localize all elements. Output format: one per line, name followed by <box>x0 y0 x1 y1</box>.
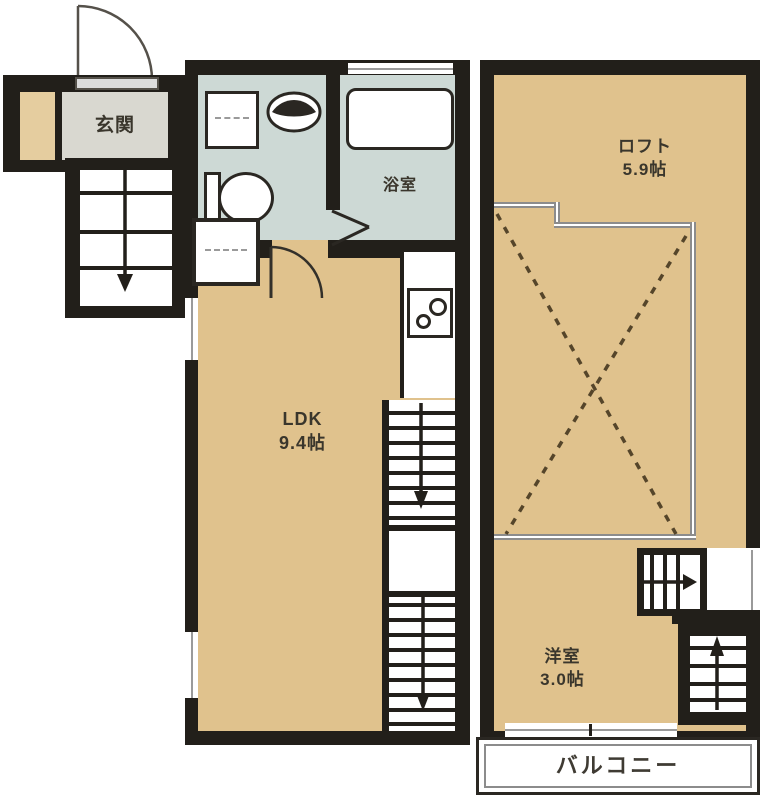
balcony-area: バルコニー <box>476 737 760 795</box>
bathroom-room: 浴室 <box>352 172 448 200</box>
washroom-door-swing-icon <box>240 240 340 302</box>
ldk-label: LDK <box>283 407 323 431</box>
loft-label: ロフト <box>618 136 672 159</box>
ldk-window-upper <box>185 298 198 360</box>
stairs-down-icon <box>80 170 172 306</box>
balcony-door-divider <box>589 724 592 736</box>
toilet-bowl-icon <box>218 172 274 224</box>
bathroom-window <box>348 63 453 74</box>
sink-icon <box>265 90 323 135</box>
western-room-size: 3.0帖 <box>540 669 585 692</box>
loft-open-area-dashed-icon <box>490 205 700 540</box>
washer-pan-icon <box>205 91 259 149</box>
stair-break-upper <box>382 525 455 531</box>
loft-stairs-icon <box>637 548 707 616</box>
balcony-door-window <box>505 723 677 737</box>
stair-column-wall <box>382 400 389 731</box>
stair-window <box>751 550 753 610</box>
stairs-down-upper-icon <box>389 403 455 525</box>
bathtub-icon <box>346 88 454 150</box>
stairs-down-lower-icon <box>389 597 455 729</box>
stove-burner-small <box>416 314 431 329</box>
toilet-tank-icon <box>204 172 221 222</box>
ldk-size: 9.4帖 <box>279 431 326 455</box>
stairs-up-icon <box>678 622 760 725</box>
loft-size: 5.9帖 <box>623 159 668 182</box>
ldk-window-lower <box>185 632 198 698</box>
western-room: 洋室 3.0帖 <box>495 638 630 700</box>
entrance-room: 玄関 <box>62 92 168 160</box>
entrance-shoe-storage <box>20 92 55 160</box>
western-room-label: 洋室 <box>545 646 581 669</box>
bathroom-label: 浴室 <box>383 175 417 197</box>
pan-marks <box>215 117 249 119</box>
loft-room: ロフト 5.9帖 <box>575 128 715 190</box>
stove-burner-large <box>429 298 447 316</box>
entrance-threshold <box>75 77 159 90</box>
kitchen-counter-edge <box>400 252 404 398</box>
balcony-label: バルコニー <box>556 751 681 781</box>
entrance-label: 玄関 <box>95 113 135 139</box>
stair-window-bay <box>707 548 760 612</box>
stove-icon <box>407 288 453 338</box>
balcony-inner: バルコニー <box>484 744 752 788</box>
bathroom-divider-wall <box>326 75 340 210</box>
ldk-room: LDK 9.4帖 <box>235 400 370 462</box>
floor-plan: 玄関 <box>0 0 766 800</box>
